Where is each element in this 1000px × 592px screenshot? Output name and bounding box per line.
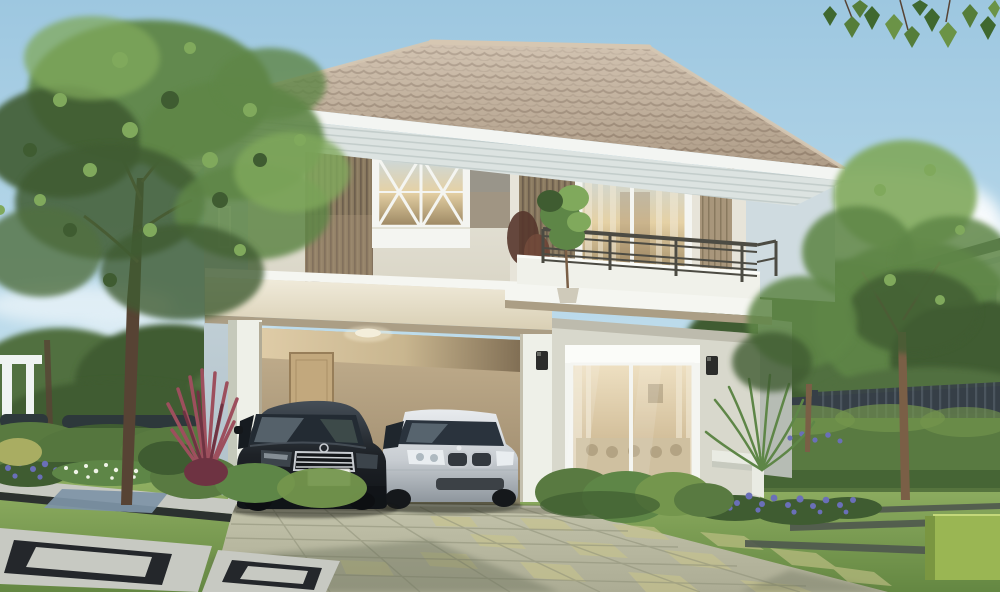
bumper-intake xyxy=(436,478,504,490)
balcony-plant-pot xyxy=(557,288,579,303)
car-wheel xyxy=(492,489,516,507)
wall-sconce-right xyxy=(706,356,718,375)
house-exterior-photo xyxy=(0,0,1000,592)
car-headlight-left xyxy=(407,450,445,465)
wall-sconce-left xyxy=(536,351,548,370)
sliding-glass-door xyxy=(565,345,700,487)
scene-canvas xyxy=(0,0,1000,592)
carport-ceiling-light xyxy=(355,329,381,338)
car-emblem xyxy=(457,446,462,451)
gray-panel-sunlit xyxy=(468,192,512,228)
car-headlight-right xyxy=(496,451,514,466)
car-headlight-right xyxy=(356,453,378,469)
trimmed-hedge-cube xyxy=(925,514,1000,580)
car-mirror xyxy=(234,426,243,434)
